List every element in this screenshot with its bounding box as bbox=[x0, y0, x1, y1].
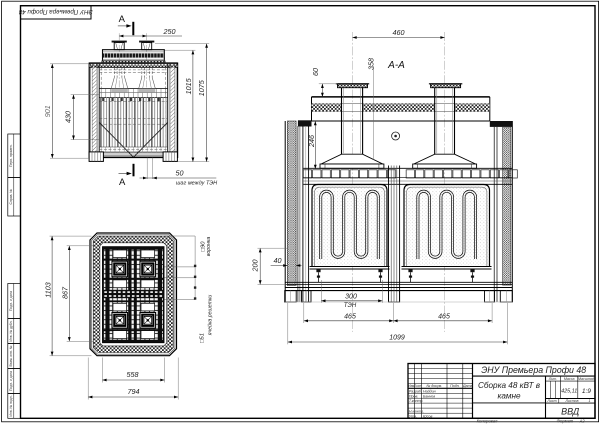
svg-text:□51: □51 bbox=[200, 333, 206, 343]
svg-text:Разраб.: Разраб. bbox=[409, 389, 422, 393]
svg-text:Копировал: Копировал bbox=[477, 418, 498, 423]
svg-text:200: 200 bbox=[251, 260, 260, 273]
svg-text:1: 1 bbox=[589, 399, 591, 403]
svg-text:Утв.: Утв. bbox=[409, 414, 417, 418]
svg-text:Перв. примен.: Перв. примен. bbox=[9, 144, 13, 167]
svg-text:А2: А2 bbox=[578, 418, 585, 423]
svg-text:Подп.: Подп. bbox=[450, 384, 460, 388]
svg-text:Формат: Формат bbox=[557, 418, 574, 423]
svg-text:460: 460 bbox=[393, 28, 405, 37]
svg-text:901: 901 bbox=[43, 105, 52, 117]
svg-text:камне: камне bbox=[497, 392, 521, 401]
svg-text:Н.контр.: Н.контр. bbox=[409, 409, 424, 413]
svg-text:ТЭН: ТЭН bbox=[344, 302, 357, 309]
svg-text:Подп. и дата: Подп. и дата bbox=[9, 291, 13, 311]
svg-text:ВВД: ВВД bbox=[561, 407, 580, 417]
svg-text:Лит.: Лит. bbox=[548, 377, 557, 381]
svg-text:246: 246 bbox=[307, 135, 316, 148]
svg-text:Баннов: Баннов bbox=[423, 394, 435, 398]
svg-text:ЭНУ Премьера Профи 48: ЭНУ Премьера Профи 48 bbox=[481, 365, 586, 375]
svg-text:воронка: воронка bbox=[206, 237, 212, 257]
svg-text:1075: 1075 bbox=[197, 79, 206, 96]
svg-text:Масса: Масса bbox=[564, 377, 575, 381]
svg-text:A: A bbox=[119, 177, 126, 188]
svg-text:ячейка решетки: ячейка решетки bbox=[207, 295, 214, 337]
svg-text:Т.контр.: Т.контр. bbox=[409, 399, 424, 403]
svg-text:300: 300 bbox=[345, 293, 357, 300]
svg-text:Лист: Лист bbox=[413, 384, 423, 388]
svg-text:Пров.: Пров. bbox=[409, 394, 418, 398]
svg-text:Найдин: Найдин bbox=[423, 389, 436, 393]
svg-text:Дата: Дата bbox=[462, 384, 472, 388]
svg-text:430: 430 bbox=[63, 111, 72, 123]
svg-text:A: A bbox=[119, 14, 126, 25]
svg-text:Инв. № подл.: Инв. № подл. bbox=[9, 395, 13, 416]
svg-text:Сборка 48 кВТ в: Сборка 48 кВТ в bbox=[478, 381, 541, 390]
svg-text:465: 465 bbox=[344, 314, 356, 321]
svg-text:1103: 1103 bbox=[43, 282, 52, 297]
svg-text:60: 60 bbox=[311, 68, 320, 76]
svg-text:ЭНУ Премьера Профи 48: ЭНУ Премьера Профи 48 bbox=[18, 8, 92, 15]
svg-text:1015: 1015 bbox=[184, 77, 193, 94]
svg-text:Листов: Листов bbox=[564, 399, 578, 403]
svg-text:425,11: 425,11 bbox=[561, 388, 577, 394]
svg-text:358: 358 bbox=[367, 58, 376, 70]
svg-text:шаг между ТЭН: шаг между ТЭН bbox=[176, 181, 218, 187]
svg-text:867: 867 bbox=[61, 286, 70, 299]
svg-text:А-А: А-А bbox=[387, 60, 405, 71]
svg-text:40: 40 bbox=[274, 256, 282, 265]
svg-text:50: 50 bbox=[176, 169, 184, 178]
svg-text:Справ. №: Справ. № bbox=[9, 189, 13, 205]
svg-text:Юсов: Юсов bbox=[423, 414, 432, 418]
svg-text:465: 465 bbox=[438, 314, 450, 321]
svg-text:1099: 1099 bbox=[389, 335, 405, 342]
svg-text:1:9: 1:9 bbox=[582, 388, 591, 395]
svg-text:558: 558 bbox=[127, 370, 139, 379]
svg-text:250: 250 bbox=[163, 27, 176, 36]
svg-text:Взам. инв. №: Взам. инв. № bbox=[9, 345, 13, 366]
svg-text:Подп. и дата: Подп. и дата bbox=[9, 371, 13, 391]
svg-text:Масштаб: Масштаб bbox=[578, 377, 596, 381]
svg-text:№ докум.: № докум. bbox=[426, 384, 442, 388]
svg-text:Инв. № дубл.: Инв. № дубл. bbox=[9, 320, 13, 341]
svg-text:794: 794 bbox=[128, 387, 140, 396]
svg-text:Лист: Лист bbox=[546, 399, 556, 403]
